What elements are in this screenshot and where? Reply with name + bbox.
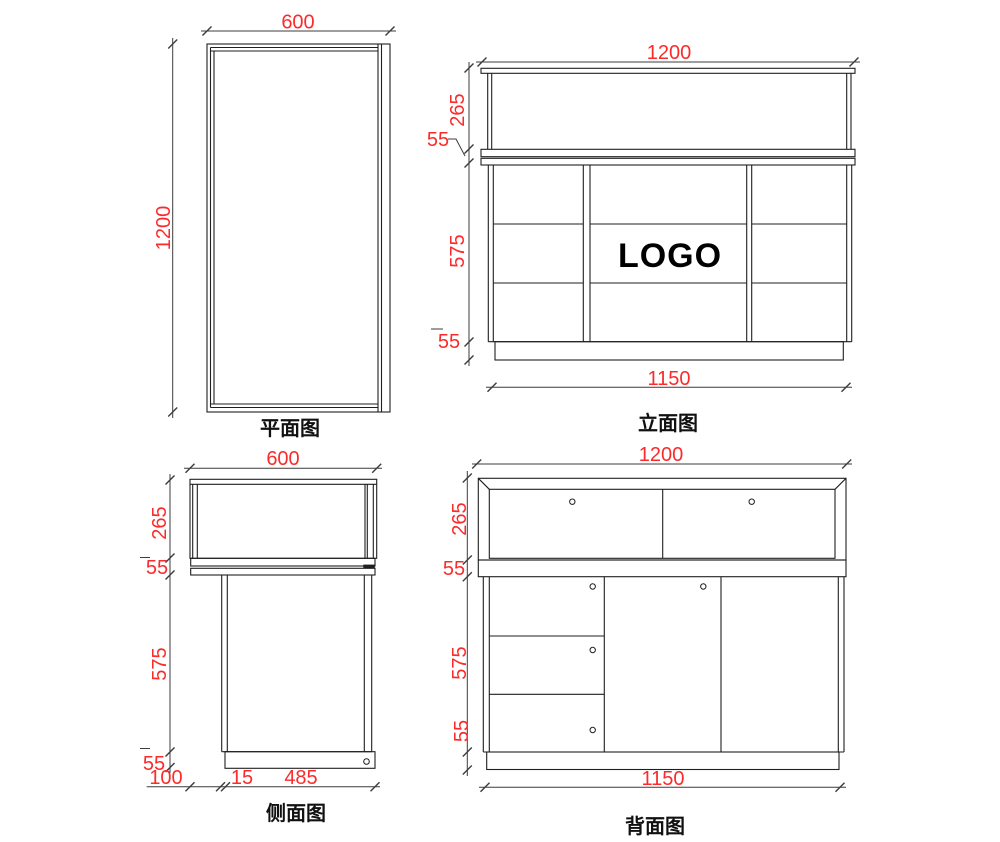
back-plinth-height-dim: 55	[451, 720, 473, 742]
back-counter-thickness-dim: 55	[443, 558, 465, 580]
handle-hole	[590, 727, 595, 732]
back-cabinet-height-dim: 575	[449, 646, 471, 679]
plinth	[487, 752, 839, 770]
top-cap	[481, 68, 855, 73]
back-view-dimensions: 1200 265 55 575 55 1150	[443, 444, 852, 792]
plan-depth-dim: 1200	[153, 206, 175, 251]
elevation-base-width-dim: 1150	[647, 368, 690, 390]
elevation-outline: LOGO	[481, 68, 855, 360]
plan-view: 600 1200 平面图	[153, 12, 396, 441]
side-view-outline	[190, 479, 377, 768]
handle-hole	[590, 647, 595, 652]
handle-hole	[570, 499, 575, 504]
elevation-total-width-dim: 1200	[647, 42, 692, 64]
handle-hole	[701, 584, 706, 589]
plan-view-outline	[207, 44, 390, 412]
back-view-title: 背面图	[625, 814, 685, 838]
side-total-depth-dim: 600	[266, 448, 299, 470]
adjuster-hole	[364, 759, 370, 765]
back-view-outline	[478, 478, 846, 769]
lock-detail	[363, 565, 375, 569]
plan-width-dim: 600	[281, 12, 314, 34]
counter-band-upper	[191, 558, 375, 566]
plan-view-dimensions: 600 1200	[153, 12, 396, 419]
counter-band-lower	[481, 158, 855, 165]
elevation-cabinet-height-dim: 575	[447, 234, 469, 267]
back-view: 1200 265 55 575 55 1150 背面图	[443, 444, 852, 838]
back-base-width-dim: 1150	[641, 768, 684, 790]
logo-text: LOGO	[618, 237, 722, 275]
counter-band-upper	[481, 149, 855, 156]
side-view-dimensions: 600 265 55 575 55 100 15 485	[140, 448, 382, 791]
elevation-plinth-height-dim: 55	[438, 331, 460, 353]
counter-band-lower	[191, 568, 375, 575]
back-total-width-dim: 1200	[639, 444, 684, 466]
side-panel-thickness-dim: 15	[231, 767, 253, 789]
elevation-display-height-dim: 265	[447, 93, 469, 126]
side-cabinet-height-dim: 575	[149, 647, 171, 680]
display-box	[190, 479, 377, 558]
counter-band	[478, 560, 846, 577]
technical-drawing-canvas: 600 1200 平面图	[0, 0, 1000, 842]
elevation-counter-thickness-dim: 55	[427, 129, 449, 151]
elevation-view: LOGO 1200 265 55 575 55 1150 立面图	[427, 42, 860, 435]
side-cabinet-depth-dim: 485	[284, 767, 317, 789]
side-view-title: 侧面图	[266, 801, 326, 825]
plinth	[495, 342, 843, 360]
handle-hole	[590, 584, 595, 589]
handle-hole	[749, 499, 754, 504]
side-view: 600 265 55 575 55 100 15 485 侧面图	[140, 448, 382, 825]
plinth	[225, 752, 375, 769]
side-counter-overhang-dim: 100	[149, 767, 182, 789]
back-display-height-dim: 265	[449, 502, 471, 535]
elevation-view-title: 立面图	[638, 411, 698, 435]
side-display-height-dim: 265	[149, 506, 171, 539]
leader-line	[448, 139, 465, 156]
side-counter-thickness-dim: 55	[146, 557, 168, 579]
plan-view-title: 平面图	[260, 417, 320, 440]
